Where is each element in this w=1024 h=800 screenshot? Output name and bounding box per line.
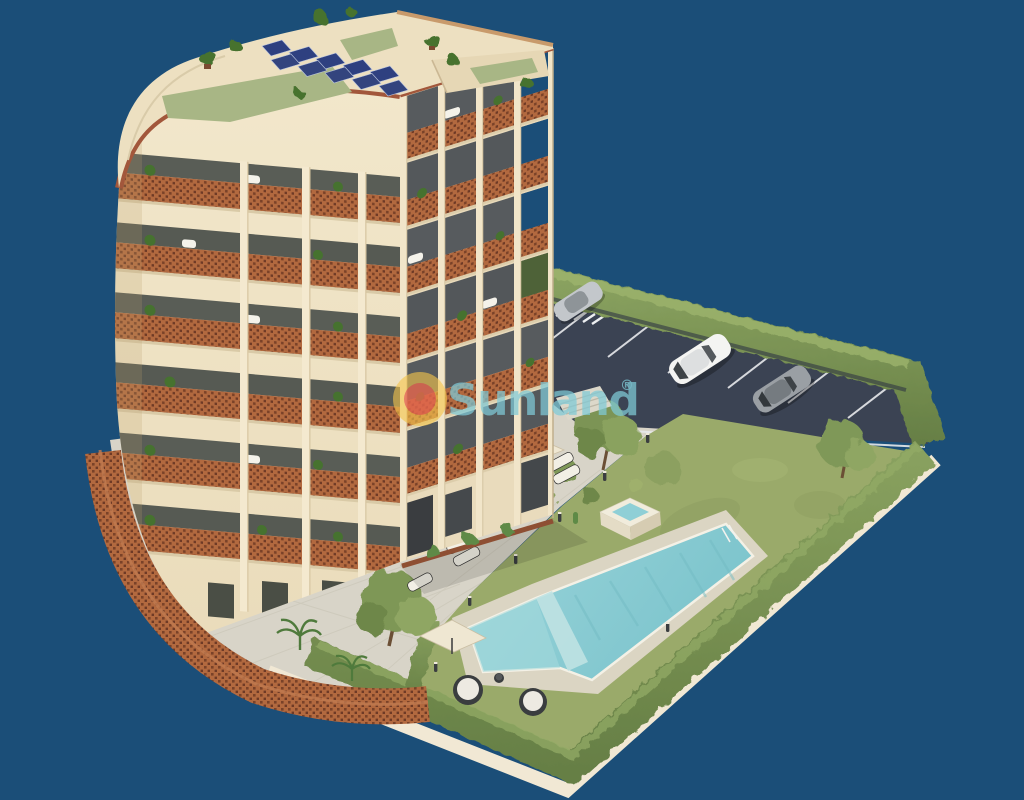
small-tree [645,451,679,485]
watermark-text: Sunland [447,375,638,426]
render-image: Sunland ® [0,0,1024,800]
watermark: Sunland ® [393,372,638,426]
facade-southwest [108,80,400,640]
facade-southeast [400,47,553,566]
registered-mark: ® [620,378,634,394]
sun-icon [393,372,447,426]
architectural-render: Sunland ® [0,0,1024,800]
